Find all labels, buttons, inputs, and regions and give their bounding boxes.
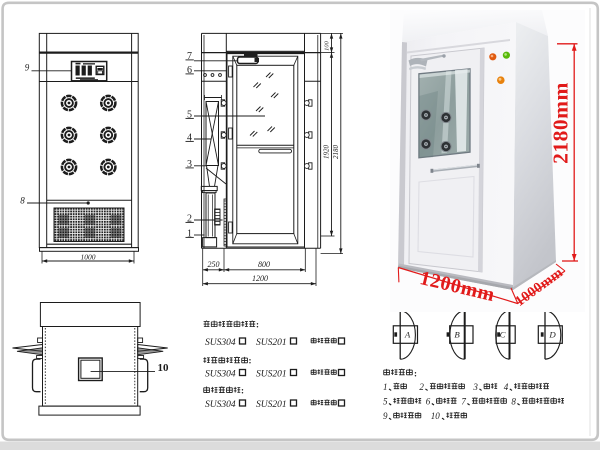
- svg-text:3: 3: [472, 382, 478, 392]
- svg-text:2180mm: 2180mm: [549, 82, 573, 164]
- svg-text::: :: [256, 320, 259, 330]
- svg-text:250: 250: [208, 260, 220, 269]
- svg-text:1: 1: [383, 382, 388, 392]
- svg-text:D: D: [548, 330, 556, 340]
- svg-text:SUS304: SUS304: [205, 400, 236, 410]
- svg-text::: :: [241, 386, 244, 396]
- svg-text:800: 800: [258, 260, 270, 269]
- svg-text:4: 4: [504, 382, 509, 392]
- svg-text:9: 9: [25, 62, 30, 72]
- svg-text:SUS201: SUS201: [256, 370, 287, 380]
- svg-text:9: 9: [383, 411, 388, 421]
- svg-text:SUS201: SUS201: [256, 338, 287, 348]
- svg-text:1200: 1200: [252, 274, 268, 283]
- svg-text:C: C: [500, 330, 506, 340]
- svg-text:6: 6: [426, 397, 431, 407]
- svg-text:8: 8: [20, 196, 25, 206]
- svg-text::: :: [249, 356, 252, 366]
- svg-text:100: 100: [324, 40, 331, 51]
- svg-text:10: 10: [431, 411, 441, 421]
- svg-text:10: 10: [158, 362, 170, 374]
- svg-text:7: 7: [461, 397, 466, 407]
- svg-text:B: B: [454, 330, 460, 340]
- svg-text:SUS201: SUS201: [256, 400, 287, 410]
- svg-text:1920: 1920: [323, 145, 331, 160]
- svg-text:A: A: [404, 330, 411, 340]
- svg-text::: :: [414, 369, 417, 379]
- svg-text:1000: 1000: [81, 252, 96, 261]
- svg-text:5: 5: [383, 397, 388, 407]
- svg-text:8: 8: [511, 397, 516, 407]
- svg-text:SUS304: SUS304: [205, 370, 236, 380]
- svg-text:2: 2: [419, 382, 424, 392]
- svg-text:2180: 2180: [332, 145, 340, 160]
- svg-text:SUS304: SUS304: [205, 338, 236, 348]
